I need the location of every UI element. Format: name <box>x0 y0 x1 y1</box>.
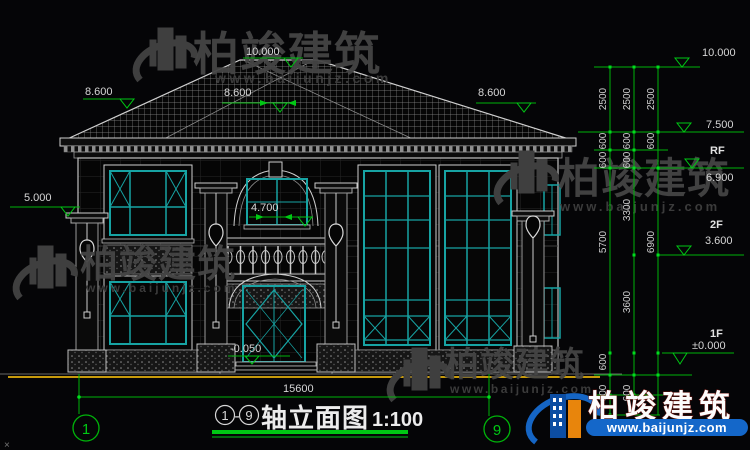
axis-bubble-9: 9 <box>484 416 510 442</box>
axis-bubble-1: 1 <box>73 415 99 441</box>
eaves-cornice <box>60 138 576 158</box>
title-axis-9: 9 <box>245 408 252 423</box>
dim-ridge: 10.000 <box>246 46 280 58</box>
watermark-brand: 柏竣建筑 <box>558 155 730 202</box>
title-underline-thick <box>212 430 408 434</box>
dim-eave-right: 8.600 <box>478 87 506 99</box>
right-window-wall-1 <box>358 165 436 350</box>
chain-dim: 600 <box>622 132 633 149</box>
watermark-brand: 柏竣建筑 <box>80 244 236 286</box>
dim-total-width: 15600 <box>283 383 314 395</box>
chain-dim: 6900 <box>646 230 657 253</box>
logo-building-orange <box>568 400 581 438</box>
axis-label: 9 <box>493 422 501 439</box>
level-rf: RF <box>710 145 725 157</box>
elevation-drawing: 柏竣建筑 www.baijunjz.com 柏竣建筑 www.baijunjz.… <box>0 0 750 450</box>
brand-logo-watermark <box>16 246 74 298</box>
level-10000: 10.000 <box>702 47 736 59</box>
chain-dim: 600 <box>646 132 657 149</box>
chain-dim: 3600 <box>622 290 633 313</box>
dim-eave-center: 8.600 <box>224 87 252 99</box>
chain-dim: 3300 <box>622 198 633 221</box>
drawing-title: 1 - 9 轴立面图 1:100 <box>212 403 423 437</box>
chain-dim: 600 <box>598 151 609 168</box>
chain-dim: 2500 <box>646 87 657 110</box>
logo-building-blue <box>550 394 566 438</box>
cad-elevation-canvas: 柏竣建筑 www.baijunjz.com 柏竣建筑 www.baijunjz.… <box>0 0 750 450</box>
dim-balcony: 4.700 <box>251 202 279 214</box>
chain-dim: 2500 <box>622 87 633 110</box>
right-window-wall-2 <box>439 165 517 350</box>
title-axis-1: 1 <box>221 408 228 423</box>
brand-logo-watermark <box>136 28 194 80</box>
left-window-2f <box>102 165 194 243</box>
entrance-steps <box>220 362 332 374</box>
title-scale: 1:100 <box>372 409 423 431</box>
chain-dim: 2500 <box>598 87 609 110</box>
brand-logo-color: 柏竣建筑 www.baijunjz.com <box>529 389 748 442</box>
title-dash: - <box>234 408 239 425</box>
level-3600: 3.600 <box>705 235 733 247</box>
level-zero: ±0.000 <box>692 340 726 352</box>
corner-mark: × <box>4 440 10 450</box>
dim-eave-left: 8.600 <box>85 86 113 98</box>
logo-url-text: www.baijunjz.com <box>606 420 727 435</box>
level-7500: 7.500 <box>706 119 734 131</box>
chain-dim: 5700 <box>598 230 609 253</box>
dim-pillar-top: 5.000 <box>24 192 52 204</box>
watermark-left: 柏竣建筑 www.baijunjz.com <box>16 244 237 298</box>
level-1f: 1F <box>710 328 723 340</box>
level-6900: 6.900 <box>706 172 734 184</box>
watermark-url: www.baijunjz.com <box>559 199 720 214</box>
watermark-url: www.baijunjz.com <box>85 281 238 295</box>
watermark-brand: 柏竣建筑 <box>445 345 585 384</box>
axis-label: 1 <box>82 421 90 438</box>
watermark-url: www.baijunjz.com <box>214 70 392 86</box>
chain-dim: 600 <box>622 151 633 168</box>
logo-brand-text: 柏竣建筑 <box>588 389 736 424</box>
level-2f: 2F <box>710 219 723 231</box>
title-name: 轴立面图 <box>261 403 369 433</box>
watermark-bottom: 柏竣建筑 www.baijunjz.com <box>390 345 593 400</box>
chain-dim: 600 <box>598 353 609 370</box>
chain-dim: 600 <box>598 132 609 149</box>
dim-entrance: -0.050 <box>230 343 261 355</box>
